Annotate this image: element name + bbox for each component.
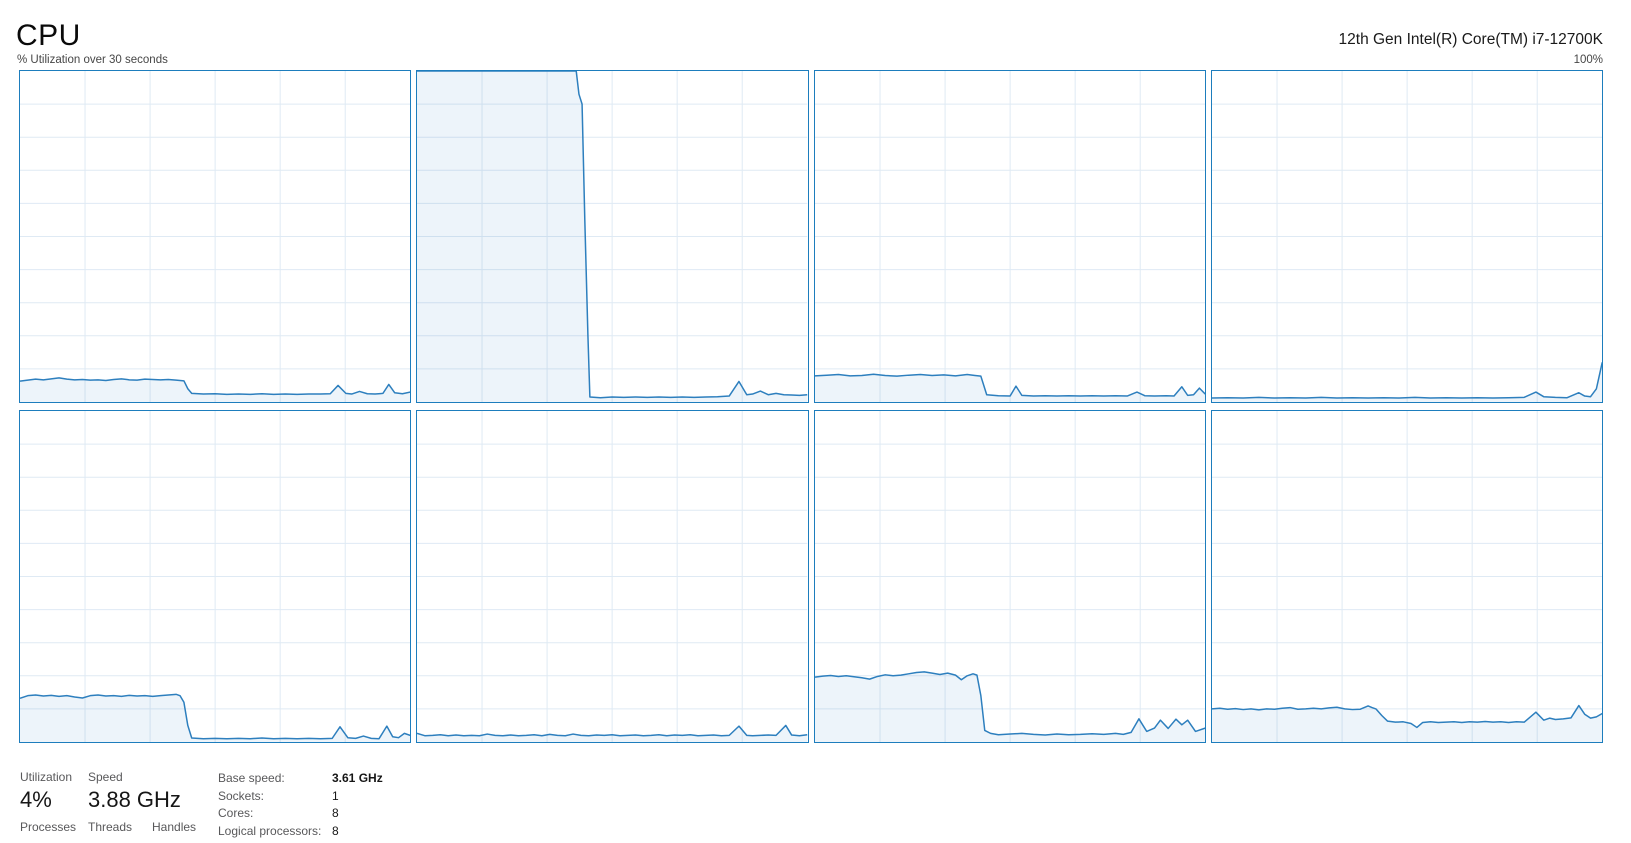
utilization-value: 4% [20,787,72,813]
utilization-axis-label: % Utilization over 30 seconds [17,54,168,66]
processes-label: Processes [20,820,76,834]
cpu-details-list: Base speed: 3.61 GHz Sockets: 1 Cores: 8… [218,771,383,841]
sockets-label: Sockets: [218,789,332,807]
sockets-row: Sockets: 1 [218,789,383,807]
cores-row: Cores: 8 [218,806,383,824]
base-speed-row: Base speed: 3.61 GHz [218,771,383,789]
utilization-stat: Utilization 4% [20,770,72,813]
speed-label: Speed [88,770,181,784]
y-axis-max-label: 100% [1574,54,1603,66]
utilization-label: Utilization [20,770,72,784]
core-graph-2[interactable] [416,70,808,403]
core-graph-7[interactable] [814,410,1206,743]
core-graph-6[interactable] [416,410,808,743]
threads-label: Threads [88,820,132,834]
handles-label: Handles [152,820,196,834]
base-speed-label: Base speed: [218,771,332,789]
logical-processors-row: Logical processors: 8 [218,824,383,842]
chart-header-row: % Utilization over 30 seconds 100% [17,54,1603,66]
logical-processors-label: Logical processors: [218,824,332,842]
core-graph-3[interactable] [814,70,1206,403]
cpu-model-name: 12th Gen Intel(R) Core(TM) i7-12700K [1339,31,1603,49]
sockets-value: 1 [332,789,339,807]
logical-processors-value: 8 [332,824,339,842]
logical-processors-grid [19,70,1603,743]
core-graph-8[interactable] [1211,410,1603,743]
base-speed-value: 3.61 GHz [332,771,383,789]
cores-label: Cores: [218,806,332,824]
core-graph-4[interactable] [1211,70,1603,403]
page-title: CPU [16,19,81,53]
core-graph-5[interactable] [19,410,411,743]
speed-stat: Speed 3.88 GHz [88,770,181,813]
cores-value: 8 [332,806,339,824]
core-graph-1[interactable] [19,70,411,403]
speed-value: 3.88 GHz [88,787,181,813]
